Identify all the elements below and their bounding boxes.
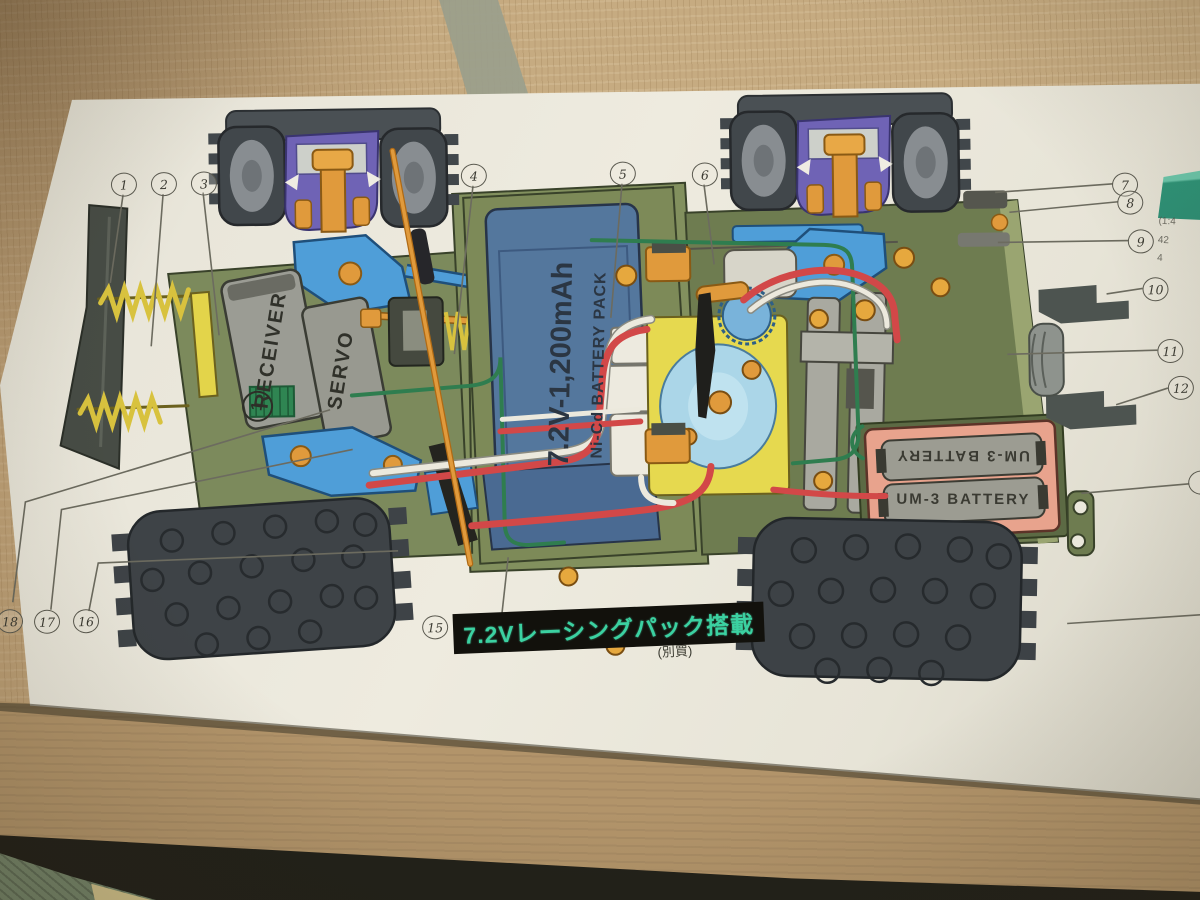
- box-edge-text-line3: 4: [1157, 250, 1175, 269]
- um3-battery-label-top: UM-3 BATTERY: [878, 447, 1048, 465]
- chassis-cutaway-diagram: 1 2 3 4 5 6 7 8 9 10 11 12 15 16 17 18 R…: [0, 0, 1200, 900]
- rear-wing-mount: [1067, 491, 1094, 555]
- front-right-wheel-assembly: [720, 93, 972, 218]
- front-left-wheel-assembly: [208, 108, 460, 233]
- box-edge-text: (1:4 42 4: [1157, 213, 1176, 269]
- box-edge-text-line2: 42: [1157, 231, 1175, 250]
- battery-capacity-label: 7.2V-1,200mAh: [542, 234, 580, 495]
- speed-controller: [647, 315, 789, 495]
- um3-battery-label-bottom: UM-3 BATTERY: [878, 491, 1048, 509]
- rear-right-tire: [735, 517, 1038, 687]
- front-bumper-blade: [57, 205, 131, 470]
- photo-of-rc-car-box: 1 2 3 4 5 6 7 8 9 10 11 12 15 16 17 18 R…: [0, 0, 1200, 900]
- sold-separately-note: (別買): [657, 640, 693, 661]
- rear-left-tire: [110, 495, 415, 662]
- box-edge-text-line1: (1:4: [1158, 213, 1176, 232]
- power-switch-parts: [1028, 285, 1136, 430]
